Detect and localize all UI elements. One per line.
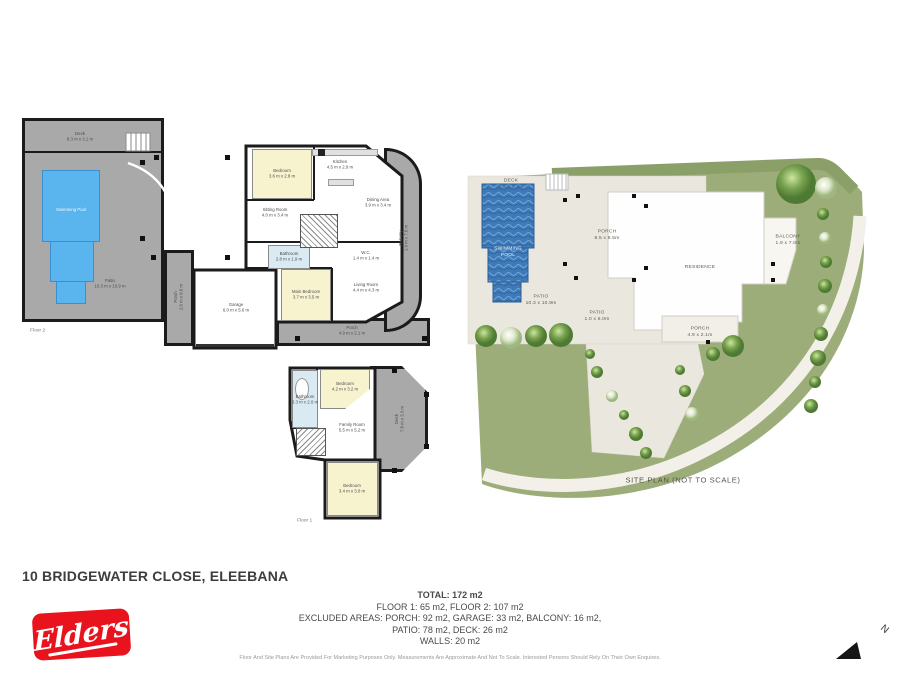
summary-excluded-2: PATIO: 78 m2, DECK: 26 m2: [180, 625, 720, 637]
site-label-porch-front: PORCH4.9 x 2.1m: [688, 325, 713, 338]
floorplan-page: Deck8.3 m x 3.1 m Swimming Pool Patio10.…: [0, 0, 900, 675]
summary-total: TOTAL: 172 m2: [180, 590, 720, 602]
room-label-f1-family: Family Room5.5 m x 5.2 m: [339, 422, 365, 434]
porch-post: [154, 155, 159, 160]
room-label-dining: Dining Area3.9 m x 3.4 m: [365, 197, 391, 209]
porch-post: [140, 236, 145, 241]
porch-post: [140, 160, 145, 165]
property-address: 10 BRIDGEWATER CLOSE, ELEEBANA: [22, 568, 288, 584]
porch-post: [225, 255, 230, 260]
room-label-pool: Swimming Pool: [56, 207, 86, 213]
room-label-sitting: Sitting Room4.0 m x 3.4 m: [262, 207, 288, 219]
floor1-stairs: [296, 428, 326, 456]
deck-post: [392, 468, 397, 473]
room-label-balcony: Balcony1.9 m x 7.0 m: [398, 225, 410, 251]
summary-excluded-1: EXCLUDED AREAS: PORCH: 92 m2, GARAGE: 33…: [180, 613, 720, 625]
room-label-porch: Porch4.9 m x 2.1 m: [339, 325, 365, 337]
site-label-deck: DECK8.3 x 3.1m: [499, 177, 524, 190]
floor1-tag: Floor 1: [297, 518, 312, 523]
room-label-f1-bedroom-top: Bedroom4.2 m x 3.2 m: [332, 381, 358, 393]
site-label-balcony: BALCONY1.9 x 7.0m: [776, 233, 801, 246]
elders-logo: Elders: [32, 608, 132, 661]
room-label-f1-bedroom-bottom: Bedroom3.4 m x 3.0 m: [339, 483, 365, 495]
room-label-bedroom: Bedroom3.6 m x 2.8 m: [269, 168, 295, 180]
room-label-wc: W.C.1.4 m x 1.4 m: [353, 250, 379, 262]
porch-post: [151, 255, 156, 260]
deck-post: [424, 392, 429, 397]
porch-post: [422, 336, 427, 341]
room-label-f1-bathroom: Bathroom3.3 m x 2.0 m: [292, 394, 318, 406]
stove-icon: [318, 149, 325, 156]
room-label-bathroom: Bathroom2.8 m x 1.9 m: [276, 251, 302, 263]
floor2-tag: Floor 2: [30, 328, 45, 333]
room-label-deck: Deck8.3 m x 3.1 m: [67, 131, 93, 143]
floor2-stairs: [300, 214, 338, 248]
room-label-porch-side: Porch2.0 m x 8.0 m: [173, 284, 185, 310]
room-label-garage: Garage6.0 m x 5.6 m: [223, 302, 249, 314]
site-label-patio-small: PATIO1.0 x 6.0m: [585, 309, 610, 322]
summary-walls: WALLS: 20 m2: [180, 636, 720, 648]
room-label-kitchen: Kitchen4.5 m x 2.9 m: [327, 159, 353, 171]
site-label-residence: RESIDENCE: [685, 264, 715, 271]
north-arrow-icon: N: [830, 615, 894, 665]
room-label-f1-deck: Deck7.8 m x 3.3 m: [394, 406, 406, 432]
deck-post: [424, 444, 429, 449]
room-label-main-bedroom: Main Bedroom3.7 m x 3.5 m: [292, 289, 320, 301]
site-label-porch-main: PORCH8.5 x 8.5m: [595, 228, 620, 241]
room-label-living: Living Room4.4 m x 4.3 m: [353, 282, 379, 294]
site-plan-caption: SITE PLAN (NOT TO SCALE): [625, 476, 740, 485]
site-plan-drawing: [466, 158, 870, 506]
deck-post: [392, 368, 397, 373]
north-letter: N: [878, 623, 891, 636]
porch-post: [225, 155, 230, 160]
summary-floors: FLOOR 1: 65 m2, FLOOR 2: 107 m2: [180, 602, 720, 614]
area-summary: TOTAL: 172 m2 FLOOR 1: 65 m2, FLOOR 2: 1…: [180, 590, 720, 648]
porch-post: [295, 336, 300, 341]
room-label-patio: Patio10.3 m x 10.9 m: [94, 278, 125, 290]
site-label-pool: SWIMMING POOL: [493, 245, 524, 258]
site-label-patio-main: PATIO10.3 x 10.9m: [526, 293, 557, 306]
disclaimer-text: Floor And Site Plans Are Provided For Ma…: [160, 655, 740, 661]
kitchen-island: [328, 179, 354, 186]
